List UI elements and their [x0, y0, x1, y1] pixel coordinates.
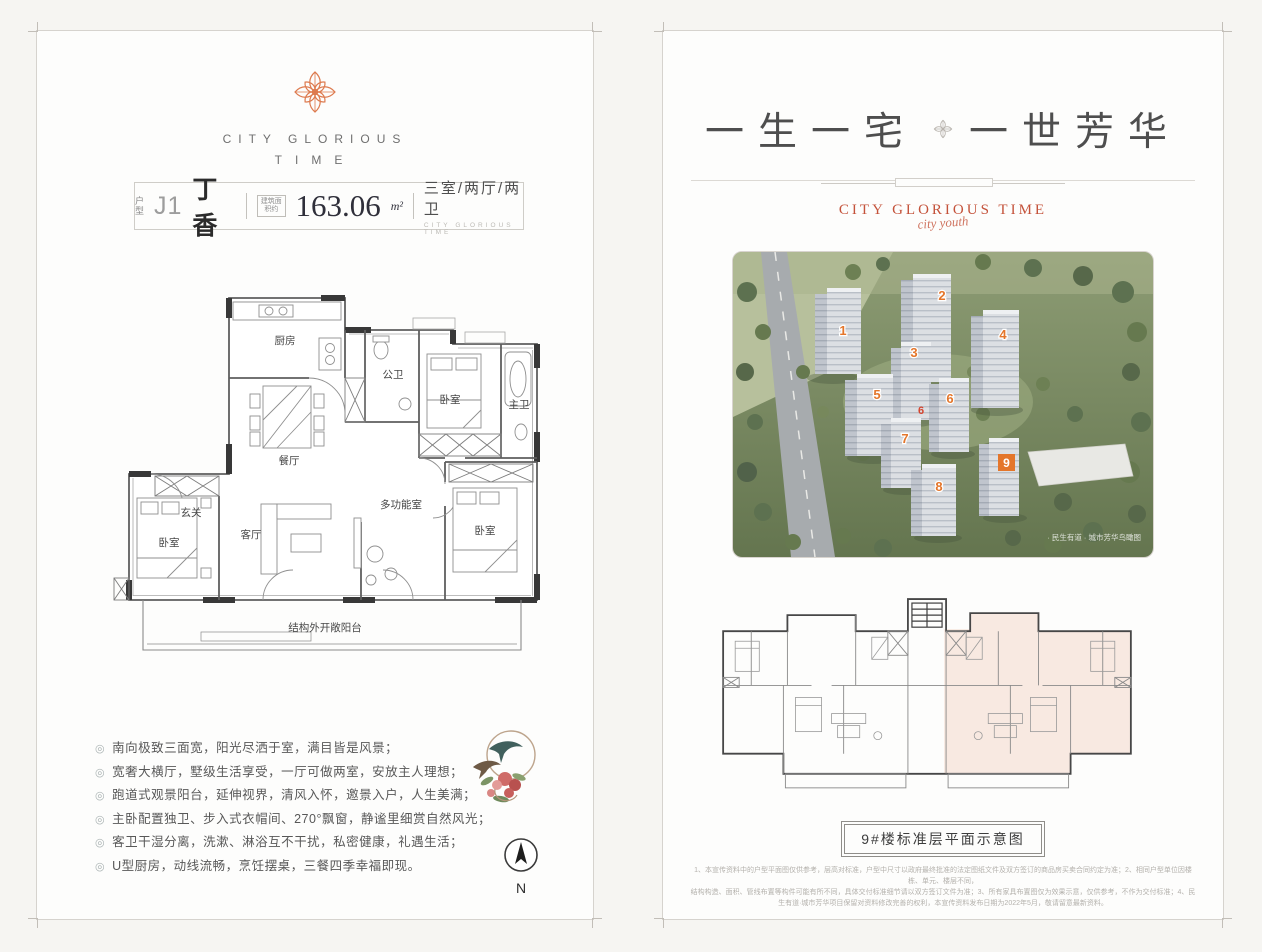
building-marker-9-highlight: 9 [998, 454, 1015, 471]
feature-item: ◎南向极致三面宽，阳光尽洒于室，满目皆是风景； [95, 737, 475, 761]
divider [413, 193, 414, 219]
room-label-bedroom-left: 卧室 [159, 536, 180, 549]
corner-mark [654, 22, 664, 32]
right-panel: 一生一宅 一世芳华 CITY GLORIOUS TIME city youth [662, 30, 1224, 920]
bullet-icon: ◎ [95, 767, 105, 779]
headline: 一生一宅 一世芳华 [663, 101, 1223, 157]
decorative-rule [691, 177, 1195, 187]
headline-left: 一生一宅 [705, 101, 917, 157]
unit-code: J1 [154, 192, 182, 221]
corner-mark [28, 918, 38, 928]
red-mark: 6 [918, 405, 924, 417]
brand-lockup: CITY GLORIOUS TIME city youth [663, 201, 1223, 231]
brochure-page: CITY GLORIOUS TIME 户型 J1 丁香 建筑面积约 163.06… [0, 0, 1262, 952]
unit-title-bar: 户型 J1 丁香 建筑面积约 163.06 m² 三室/两厅/两卫 CITY G… [134, 182, 524, 230]
corner-mark [28, 22, 38, 32]
building-marker-7: 7 [901, 431, 908, 446]
compass-icon [503, 837, 539, 873]
left-panel: CITY GLORIOUS TIME 户型 J1 丁香 建筑面积约 163.06… [36, 30, 594, 920]
stair-core [912, 603, 942, 627]
unit-name: 丁香 [192, 170, 236, 242]
disclaimer-line-1: 1、本宣传资料中的户型平面图仅供参考，层高对标准，户型中尺寸以政府最终批准的法定… [689, 865, 1197, 887]
feature-item: ◎U型厨房，动线流畅，烹饪摆桌，三餐四季幸福即现。 [95, 855, 475, 879]
building-marker-8: 8 [935, 479, 942, 494]
feature-text: 宽奢大横厅，墅级生活享受，一厅可做两室，安放主人理想； [112, 765, 463, 779]
bullet-icon: ◎ [95, 743, 105, 755]
feature-text: 客卫干湿分离，洗漱、淋浴互不干扰，私密健康，礼遇生活； [112, 835, 463, 849]
building-marker-4: 4 [999, 327, 1007, 342]
room-label-kitchen: 厨房 [275, 334, 296, 347]
corner-mark [654, 918, 664, 928]
corner-mark [1222, 918, 1232, 928]
feature-text: 主卧配置独卫、步入式衣帽间、270°飘窗，静谧里细赏自然风光； [112, 812, 491, 826]
feature-item: ◎宽奢大横厅，墅级生活享受，一厅可做两室，安放主人理想； [95, 761, 475, 785]
disclaimer: 1、本宣传资料中的户型平面图仅供参考，层高对标准，户型中尺寸以政府最终批准的法定… [689, 865, 1197, 909]
divider [246, 193, 247, 219]
building-marker-9: 9 [1003, 456, 1010, 470]
brand-name-2: TIME [37, 153, 593, 167]
building-marker-3: 3 [910, 345, 917, 360]
unit-type-label: 户型 [135, 196, 144, 216]
floorplate-caption-box: 9#楼标准层平面示意图 [663, 821, 1223, 857]
headline-right: 一世芳华 [969, 101, 1181, 157]
corner-mark [592, 22, 602, 32]
compass-north-label: N [485, 880, 557, 896]
building-marker-1: 1 [839, 323, 846, 338]
room-layout: 三室/两厅/两卫 [424, 177, 523, 219]
room-label-bedroom-right: 卧室 [475, 524, 496, 537]
area-value: 163.06 [296, 188, 381, 224]
room-label-multi: 多功能室 [380, 498, 422, 511]
room-layout-subtext: CITY GLORIOUS TIME [424, 222, 523, 236]
bullet-icon: ◎ [95, 790, 105, 802]
feature-item: ◎客卫干湿分离，洗漱、淋浴互不干扰，私密健康，礼遇生活； [95, 831, 475, 855]
aerial-rendering: 1 2 3 4 5 6 7 8 6 9 · 民生有道 · 城市芳华鸟瞰图 [732, 251, 1154, 558]
feature-item: ◎跑道式观景阳台，延伸视界，清风入怀，邀景入户，人生美满； [95, 784, 475, 808]
aerial-watermark: · 民生有道 · 城市芳华鸟瞰图 [1047, 532, 1141, 542]
room-label-master-bath: 主卫 [509, 399, 530, 411]
feature-item: ◎主卧配置独卫、步入式衣帽间、270°飘窗，静谧里细赏自然风光； [95, 808, 475, 832]
bullet-icon: ◎ [95, 814, 105, 826]
rosette-icon [292, 69, 338, 115]
bullet-icon: ◎ [95, 837, 105, 849]
room-label-bedroom-top: 卧室 [440, 393, 461, 406]
corner-mark [1222, 22, 1232, 32]
feature-text: 跑道式观景阳台，延伸视界，清风入怀，邀景入户，人生美满； [112, 788, 476, 802]
floorplate-plan [691, 584, 1163, 822]
brand-logo: CITY GLORIOUS TIME [37, 69, 593, 167]
swallow-flower-illustration [461, 723, 549, 815]
floorplate-caption: 9#楼标准层平面示意图 [844, 824, 1042, 854]
feature-text: U型厨房，动线流畅，烹饪摆桌，三餐四季幸福即现。 [112, 859, 421, 873]
aerial-scene: 1 2 3 4 5 6 7 8 6 9 · 民生有道 · 城市芳华鸟瞰图 [733, 252, 1153, 557]
feature-list: ◎南向极致三面宽，阳光尽洒于室，满目皆是风景； ◎宽奢大横厅，墅级生活享受，一厅… [95, 737, 475, 878]
compass: N [485, 837, 557, 896]
room-label-entry: 玄关 [181, 506, 202, 519]
brand-name: CITY GLORIOUS [37, 132, 593, 146]
corner-mark [592, 918, 602, 928]
building-marker-2: 2 [938, 288, 945, 303]
feature-text: 南向极致三面宽，阳光尽洒于室，满目皆是风景； [112, 741, 398, 755]
disclaimer-line-2: 结构构造、面积、管线布置等构件可能有所不同，具体交付标准细节请以双方签订文件为准… [689, 887, 1197, 909]
room-label-dining: 餐厅 [279, 454, 300, 467]
room-label-balcony: 结构外开敞阳台 [288, 621, 362, 634]
bullet-icon: ◎ [95, 861, 105, 873]
room-label-living: 客厅 [241, 528, 262, 541]
area-unit: m² [391, 199, 403, 214]
area-label: 建筑面积约 [257, 195, 285, 217]
rosette-divider-icon [933, 119, 953, 139]
unit-floorplan: 厨房 餐厅 玄关 公卫 卧室 主卫 客厅 多功能室 卧室 卧室 结构外开敞阳台 [113, 282, 573, 696]
building-marker-5: 5 [873, 387, 880, 402]
room-label-guest-bath: 公卫 [383, 369, 404, 381]
building-marker-6: 6 [946, 391, 953, 406]
